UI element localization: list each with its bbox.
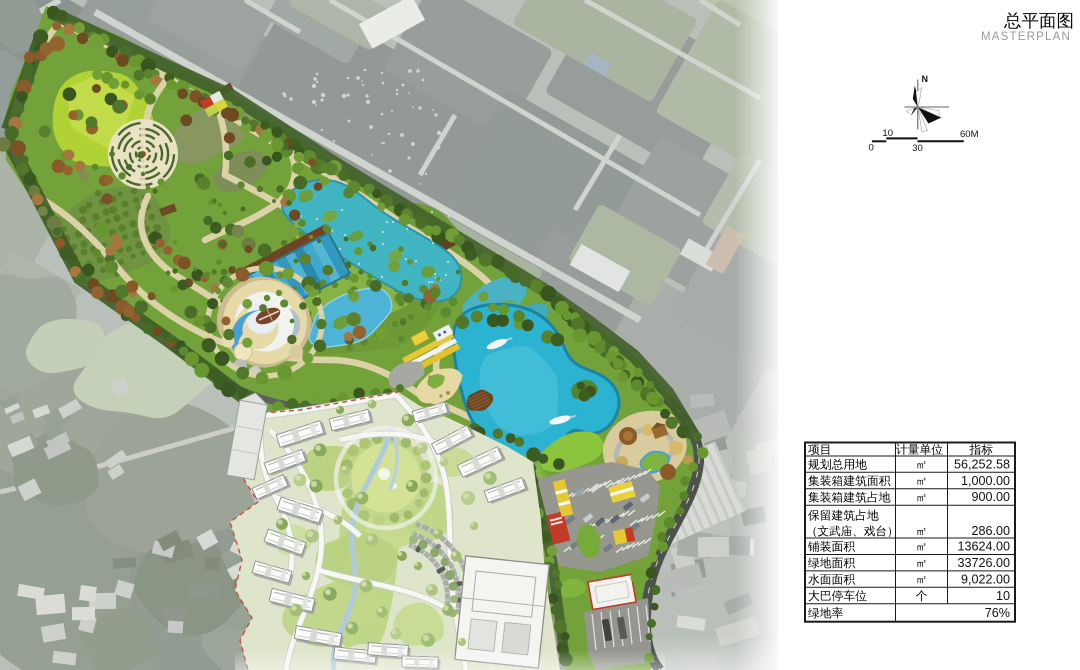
svg-text:10: 10 [996,589,1010,603]
svg-text:N: N [922,74,929,84]
svg-text:900.00: 900.00 [971,490,1010,504]
svg-text:56,252.58: 56,252.58 [954,457,1010,471]
svg-text:286.00: 286.00 [971,524,1010,538]
svg-text:0: 0 [869,143,874,154]
svg-text:76%: 76% [985,606,1010,620]
svg-text:33726.00: 33726.00 [957,556,1010,570]
svg-text:10: 10 [882,128,893,139]
svg-text:13624.00: 13624.00 [957,540,1010,554]
svg-text:MASTERPLAN: MASTERPLAN [981,31,1071,43]
svg-text:30: 30 [912,143,923,154]
svg-text:9,022.00: 9,022.00 [961,572,1010,586]
svg-text:1,000.00: 1,000.00 [961,474,1010,488]
svg-text:60M: 60M [960,129,979,140]
